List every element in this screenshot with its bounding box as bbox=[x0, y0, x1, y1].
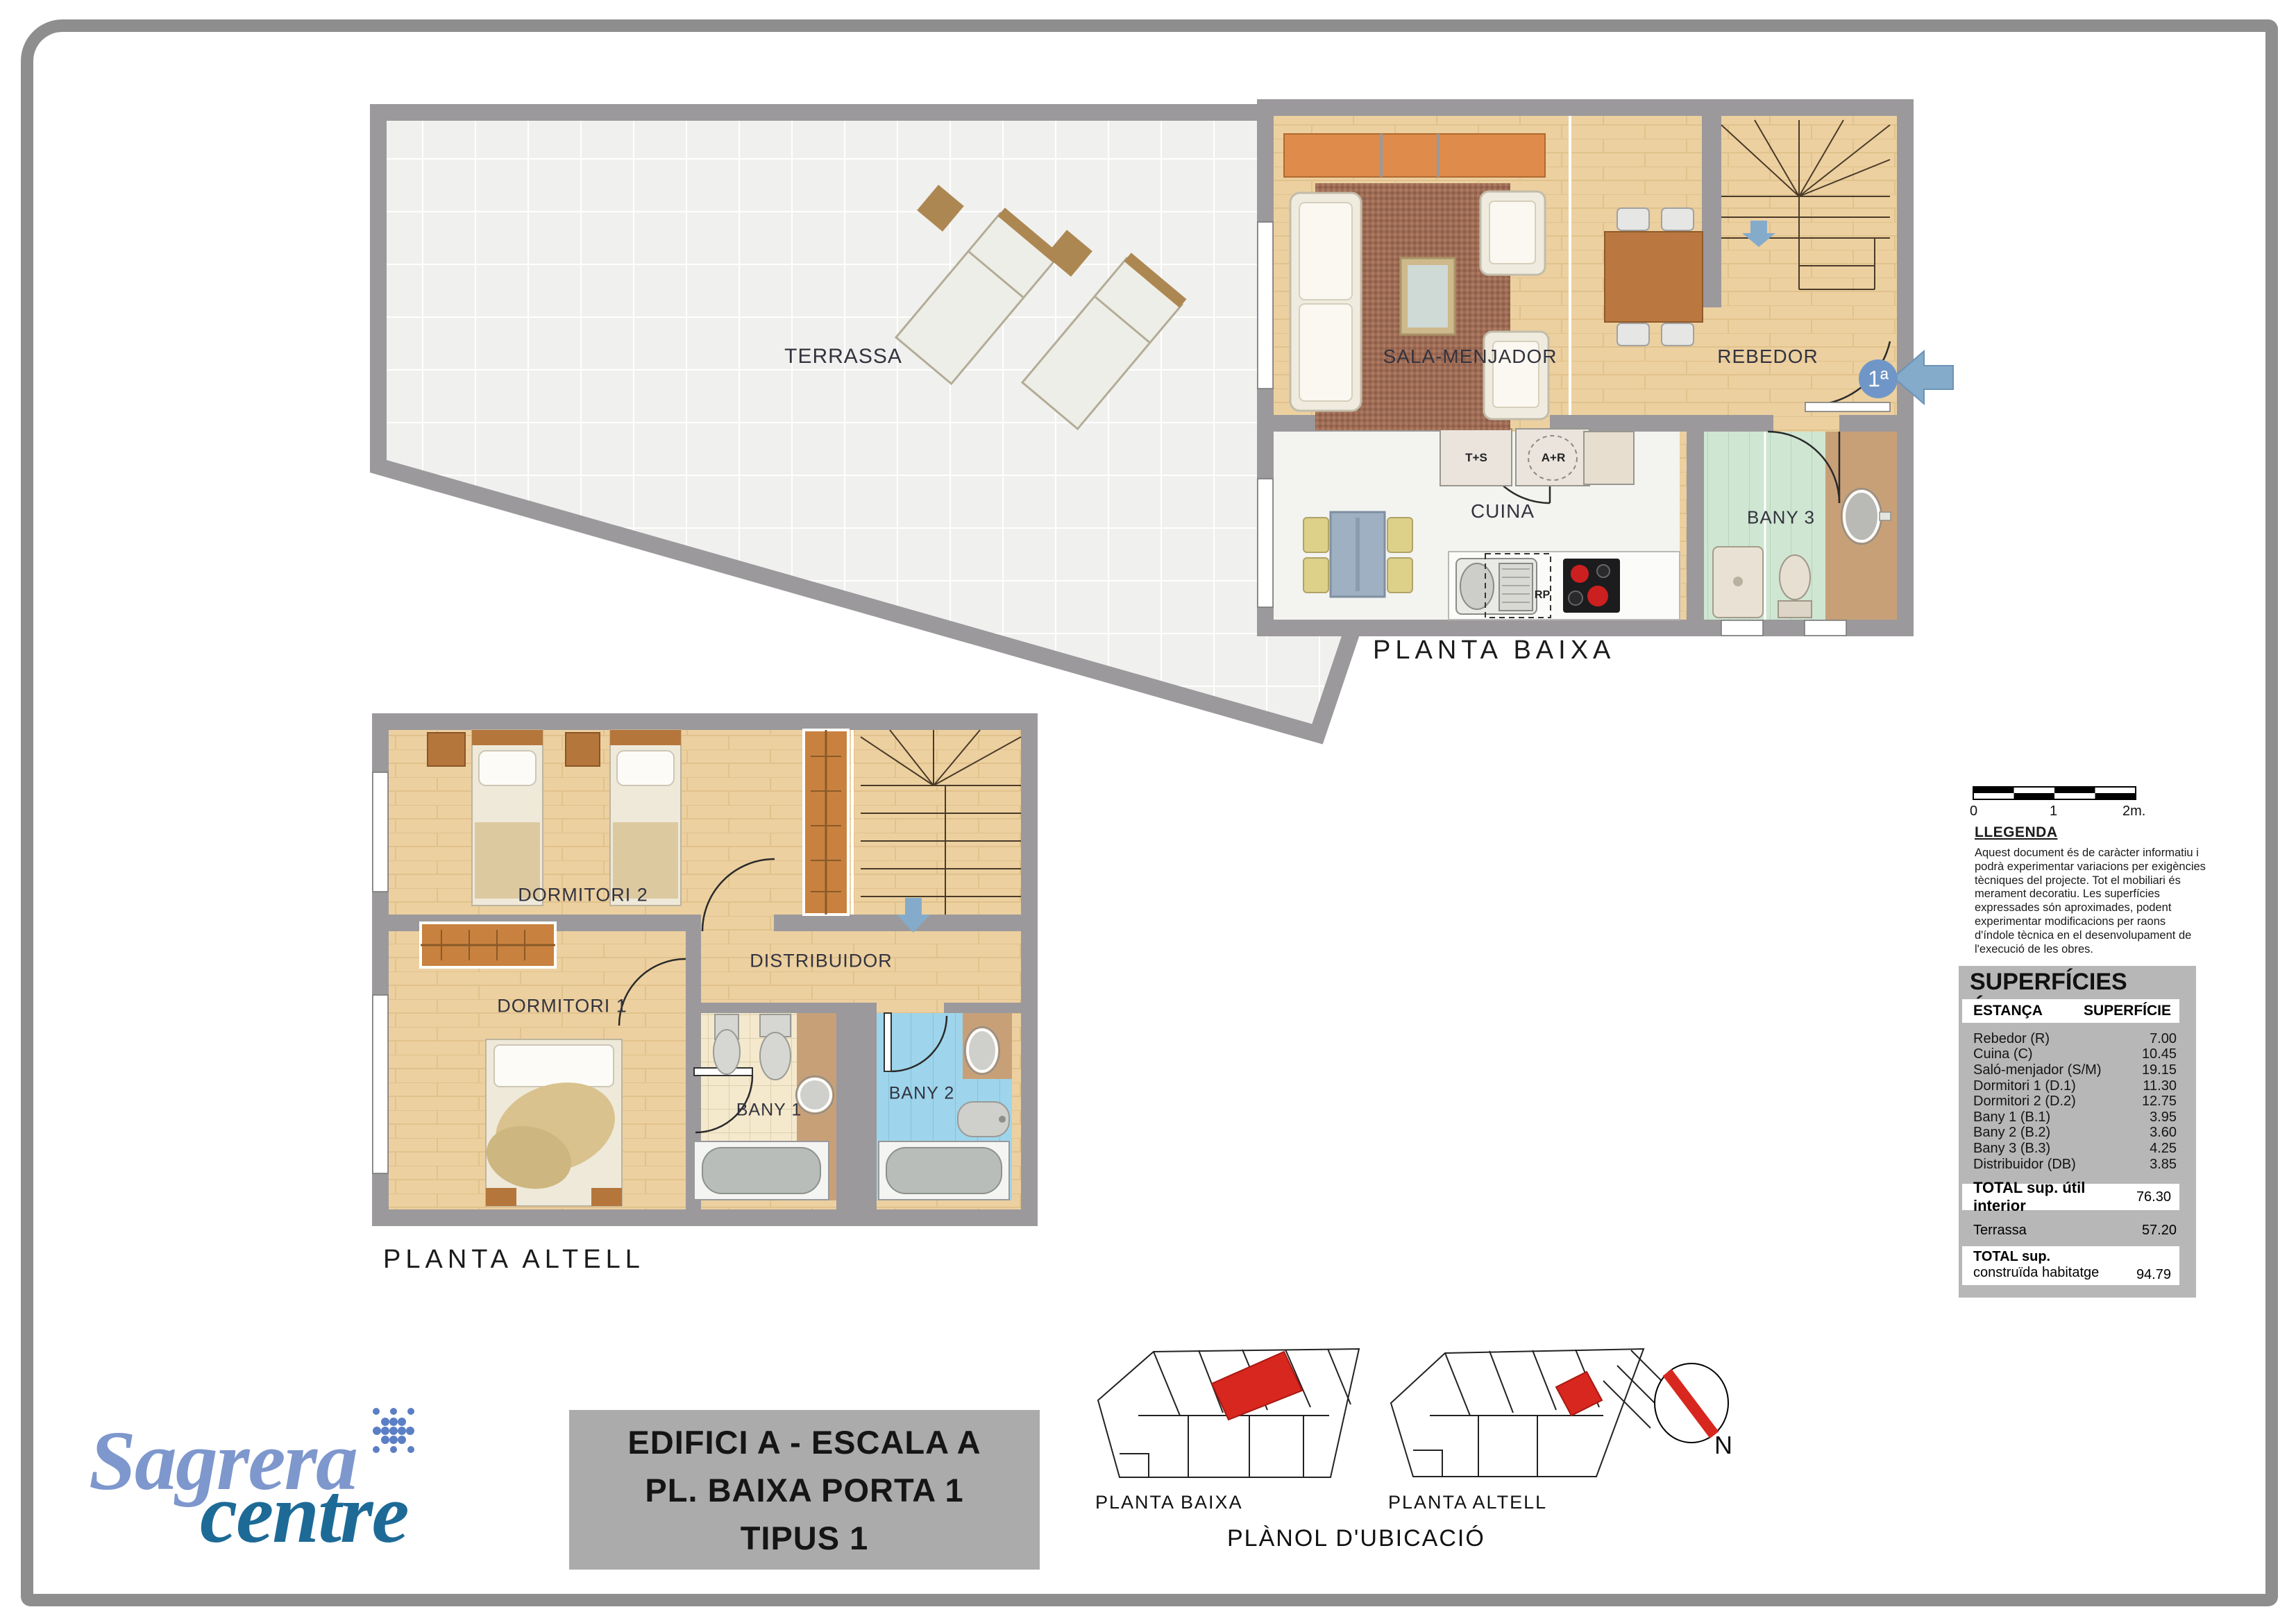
legend-title: LLEGENDA bbox=[1975, 824, 2208, 841]
row-label: Bany 1 (B.1) bbox=[1973, 1110, 2050, 1125]
total-built-band: TOTAL sup. construïda habitatge 94.79 bbox=[1962, 1246, 2179, 1285]
table-row: Distribuidor (DB)3.85 bbox=[1973, 1157, 2177, 1173]
plan-sheet: TERRASSA SALA-MENJADOR REBEDOR CUINA BAN… bbox=[0, 0, 2296, 1623]
scale-tick-2: 2m. bbox=[2122, 804, 2145, 819]
wardrobe-tall bbox=[804, 730, 848, 915]
table-row: Bany 1 (B.1)3.95 bbox=[1973, 1110, 2177, 1125]
scale-tick-0: 0 bbox=[1970, 804, 1977, 819]
planta-altell-drawing bbox=[361, 708, 1055, 1256]
total-interior-band: TOTAL sup. útil interior 76.30 bbox=[1962, 1184, 2179, 1210]
title-line2: PL. BAIXA PORTA 1 bbox=[645, 1471, 963, 1509]
location-caption: PLÀNOL D'UBICACIÓ bbox=[1227, 1525, 1485, 1552]
room-label-rebedor: REBEDOR bbox=[1717, 346, 1818, 368]
col-estanca: ESTANÇA bbox=[1973, 1003, 2043, 1019]
areas-table-rows: Rebedor (R)7.00 Cuina (C)10.45 Saló-menj… bbox=[1973, 1031, 2177, 1172]
areas-table-header: ESTANÇA SUPERFÍCIE bbox=[1962, 999, 2179, 1023]
room-label-dormitori1: DORMITORI 1 bbox=[497, 996, 627, 1017]
entry-door-badge: 1ª bbox=[1859, 359, 1898, 398]
room-label-distribuidor: DISTRIBUIDOR bbox=[750, 951, 893, 972]
row-value: 10.45 bbox=[2142, 1046, 2177, 1062]
row-label: Rebedor (R) bbox=[1973, 1031, 2050, 1047]
table-row: Bany 3 (B.3)4.25 bbox=[1973, 1141, 2177, 1157]
mini-plan-altell-label: PLANTA ALTELL bbox=[1388, 1492, 1547, 1513]
row-label: Bany 3 (B.3) bbox=[1973, 1141, 2050, 1157]
row-label: Bany 2 (B.2) bbox=[1973, 1125, 2050, 1141]
total-interior-label: TOTAL sup. útil interior bbox=[1973, 1179, 2136, 1215]
room-label-bany1: BANY 1 bbox=[736, 1101, 802, 1121]
row-value: 3.85 bbox=[2150, 1157, 2177, 1173]
room-label-terrassa: TERRASSA bbox=[784, 345, 902, 368]
mini-plan-altell bbox=[1391, 1349, 1678, 1477]
row-value: 11.30 bbox=[2143, 1078, 2177, 1094]
table-row: Dormitori 1 (D.1)11.30 bbox=[1973, 1078, 2177, 1094]
terrace-outline bbox=[378, 112, 1358, 734]
room-label-bany2: BANY 2 bbox=[889, 1084, 954, 1104]
legend-body: Aquest document és de caràcter informati… bbox=[1975, 847, 2208, 956]
row-value: 3.95 bbox=[2150, 1110, 2177, 1125]
row-value: 19.15 bbox=[2142, 1062, 2177, 1078]
mini-plan-baixa bbox=[1098, 1349, 1359, 1477]
room-label-cuina: CUINA bbox=[1471, 500, 1535, 522]
row-value: 12.75 bbox=[2142, 1094, 2177, 1110]
row-label: Dormitori 2 (D.2) bbox=[1973, 1094, 2076, 1110]
total-built-label1: TOTAL sup. bbox=[1973, 1249, 2050, 1264]
appliance-label-ar: A+R bbox=[1542, 451, 1565, 465]
col-superficie: SUPERFÍCIE bbox=[2084, 1003, 2171, 1019]
apartment-unit bbox=[1258, 108, 1953, 636]
altell-unit bbox=[373, 722, 1029, 1218]
logo-dots-icon bbox=[368, 1403, 423, 1460]
table-row: Cuina (C)10.45 bbox=[1973, 1047, 2177, 1063]
title-block: EDIFICI A - ESCALA A PL. BAIXA PORTA 1 T… bbox=[569, 1410, 1040, 1570]
table-row: Saló-menjador (S/M)19.15 bbox=[1973, 1062, 2177, 1078]
room-label-sala: SALA-MENJADOR bbox=[1383, 346, 1557, 368]
wardrobe-horizontal bbox=[421, 923, 555, 967]
room-label-bany3: BANY 3 bbox=[1747, 507, 1815, 529]
planta-altell-caption: PLANTA ALTELL bbox=[383, 1245, 645, 1275]
legend-block: LLEGENDA Aquest document és de caràcter … bbox=[1975, 824, 2208, 956]
row-value: 3.60 bbox=[2150, 1125, 2177, 1141]
north-label: N bbox=[1714, 1431, 1732, 1460]
mini-plan-baixa-label: PLANTA BAIXA bbox=[1095, 1492, 1243, 1513]
row-label: Cuina (C) bbox=[1973, 1046, 2033, 1062]
planta-baixa-caption: PLANTA BAIXA bbox=[1373, 636, 1615, 665]
terrassa-value: 57.20 bbox=[2142, 1223, 2177, 1239]
kitchen-counter bbox=[1449, 552, 1680, 620]
row-label: Distribuidor (DB) bbox=[1973, 1157, 2076, 1173]
total-interior-value: 76.30 bbox=[2136, 1189, 2171, 1205]
row-value: 4.25 bbox=[2150, 1141, 2177, 1157]
scale-tick-1: 1 bbox=[2050, 804, 2057, 819]
title-line3: TIPUS 1 bbox=[741, 1519, 869, 1557]
row-label: Saló-menjador (S/M) bbox=[1973, 1062, 2102, 1078]
row-value: 7.00 bbox=[2150, 1031, 2177, 1047]
scale-bar bbox=[1973, 787, 2140, 805]
table-row: Dormitori 2 (D.2)12.75 bbox=[1973, 1094, 2177, 1110]
total-built-value: 94.79 bbox=[2136, 1267, 2171, 1283]
title-line1: EDIFICI A - ESCALA A bbox=[627, 1423, 981, 1461]
table-row: Rebedor (R)7.00 bbox=[1973, 1031, 2177, 1047]
dorm1-bed bbox=[480, 1039, 627, 1206]
total-built-label2: construïda habitatge bbox=[1973, 1265, 2099, 1280]
room-label-dormitori2: DORMITORI 2 bbox=[518, 885, 648, 906]
planta-baixa-drawing bbox=[347, 83, 1985, 756]
terrassa-label: Terrassa bbox=[1973, 1223, 2027, 1239]
logo-word-centre: centre bbox=[200, 1465, 408, 1563]
appliance-label-ts: T+S bbox=[1465, 451, 1487, 465]
row-label: Dormitori 1 (D.1) bbox=[1973, 1078, 2076, 1094]
areas-table: SUPERFÍCIES ÚTILS ESTANÇA SUPERFÍCIE Reb… bbox=[1959, 966, 2196, 1298]
terrassa-row: Terrassa 57.20 bbox=[1973, 1223, 2177, 1239]
appliance-label-rp: RP bbox=[1535, 589, 1550, 602]
table-row: Bany 2 (B.2)3.60 bbox=[1973, 1125, 2177, 1141]
